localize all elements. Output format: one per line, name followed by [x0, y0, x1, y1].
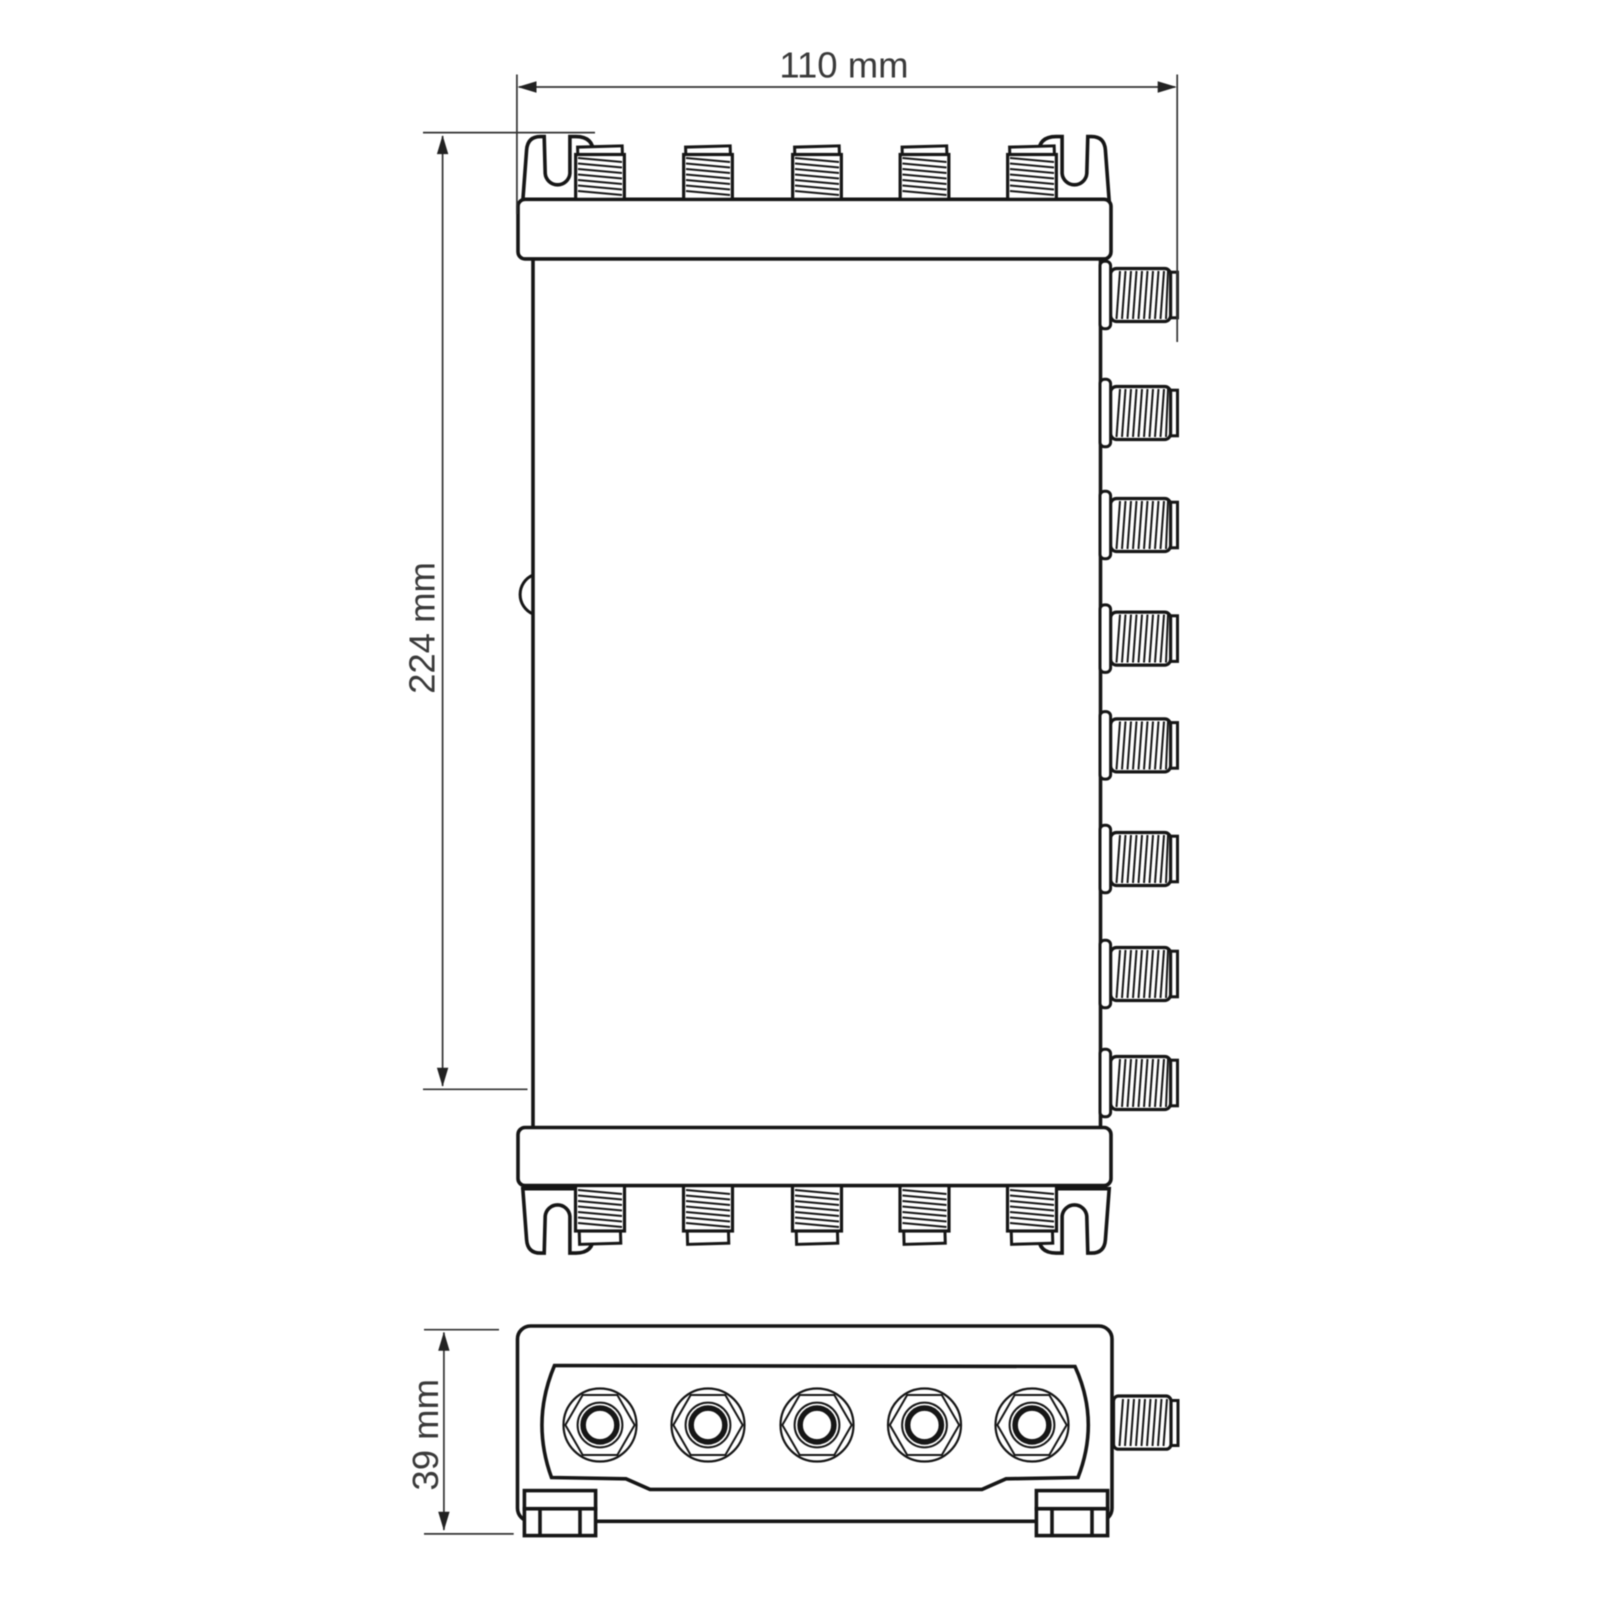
svg-text:110 mm: 110 mm — [779, 45, 908, 86]
svg-text:224 mm: 224 mm — [401, 562, 442, 694]
svg-text:39 mm: 39 mm — [405, 1379, 446, 1491]
